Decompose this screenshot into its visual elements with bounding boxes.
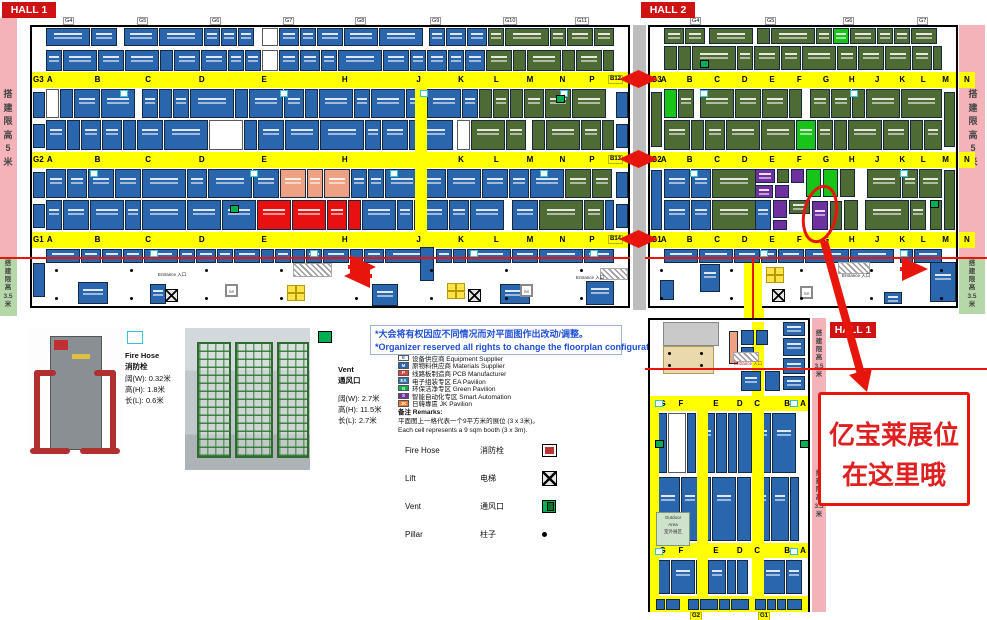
fire-hose-icon xyxy=(90,170,98,177)
booth xyxy=(924,120,942,150)
vent-icon xyxy=(542,500,556,513)
gate-label: G4 xyxy=(63,17,74,25)
aisle-letter: P xyxy=(589,156,594,164)
aisle-letter: C xyxy=(145,236,151,244)
booth xyxy=(867,169,901,198)
booth xyxy=(671,560,695,594)
organizer-notice: *大会将有权因应不同情况而对平面图作出改动/调整。 *Organizer res… xyxy=(370,325,622,355)
booth xyxy=(261,249,274,263)
aisle-letter: M xyxy=(942,156,949,164)
booth xyxy=(664,28,684,44)
booth xyxy=(712,169,756,198)
booth xyxy=(805,249,849,263)
booth xyxy=(465,50,485,71)
booth xyxy=(755,200,771,230)
pillar-icon xyxy=(940,297,943,300)
aisle-left-label: G1 xyxy=(651,236,662,244)
booth xyxy=(539,200,583,230)
booth xyxy=(789,89,802,118)
aisle-left-label: G2 xyxy=(33,156,44,164)
annotation-line1: 亿宝莱展位 xyxy=(821,415,967,455)
booth xyxy=(123,249,143,263)
booth xyxy=(448,50,464,71)
booth xyxy=(245,50,261,71)
gate-label: G5 xyxy=(765,17,776,25)
aisle xyxy=(650,72,956,88)
booth xyxy=(767,599,776,610)
booth xyxy=(383,50,409,71)
vent-icon xyxy=(318,331,332,343)
vent-icon xyxy=(556,95,565,103)
booth xyxy=(222,200,256,230)
aisle-right-letter: N xyxy=(964,76,970,84)
booth xyxy=(603,50,614,71)
pillar-icon xyxy=(870,297,873,300)
fire-hose-photo xyxy=(28,328,123,466)
pillar-icon xyxy=(940,269,943,272)
booth xyxy=(354,89,370,118)
booth xyxy=(833,28,849,44)
booth xyxy=(142,200,186,230)
booth xyxy=(700,264,720,292)
booth xyxy=(755,185,773,198)
aisle-letter: K xyxy=(899,76,905,84)
booth xyxy=(755,169,775,183)
legend-item-label: 日韓專區 JK Pavilion xyxy=(412,398,472,408)
aisle-letter: L xyxy=(494,76,499,84)
gate-label: G8 xyxy=(355,17,366,25)
booth xyxy=(584,200,604,230)
booth xyxy=(300,50,320,71)
booth xyxy=(350,249,363,263)
height-limit-text: 搭建限高 5 米 xyxy=(1,88,15,169)
legend-color-chip: M xyxy=(398,362,409,369)
booth xyxy=(651,92,662,147)
booth xyxy=(33,263,45,297)
aisle-letter: L xyxy=(921,76,926,84)
fire-hose-icon xyxy=(420,90,428,97)
vent-tower xyxy=(235,342,273,458)
symbol-legend-row: Lift电梯 xyxy=(405,464,557,492)
booth xyxy=(46,200,62,230)
service-tag xyxy=(447,291,456,299)
booth xyxy=(884,292,902,304)
booth xyxy=(46,50,62,71)
booth xyxy=(708,560,726,594)
booth xyxy=(572,89,606,118)
booth xyxy=(101,89,135,118)
aisle xyxy=(697,411,708,612)
booth xyxy=(142,169,186,198)
booth xyxy=(527,50,561,71)
gate-label: G5 xyxy=(137,17,148,25)
fire-hose-icon xyxy=(470,250,478,257)
booth xyxy=(605,200,614,230)
booth xyxy=(831,89,851,118)
booth xyxy=(562,50,575,71)
booth xyxy=(688,599,699,610)
aisle-letter: A xyxy=(800,547,806,555)
pillar-icon xyxy=(205,269,208,272)
booth xyxy=(482,169,508,198)
booth xyxy=(338,50,382,71)
booth xyxy=(911,28,937,44)
booth xyxy=(830,201,842,230)
booth xyxy=(201,50,227,71)
gate-number-tag: B14 xyxy=(608,235,623,244)
booth xyxy=(46,28,90,46)
pillar-icon xyxy=(660,297,663,300)
gate-label: G9 xyxy=(430,17,441,25)
booth xyxy=(436,249,452,263)
annotation-callout: 亿宝莱展位 在这里哦 xyxy=(818,392,970,506)
booth xyxy=(159,28,203,46)
frame-bar xyxy=(110,370,116,454)
booth xyxy=(305,89,318,118)
aisle-letter: M xyxy=(942,76,949,84)
booth xyxy=(791,169,804,183)
ramp-icon xyxy=(293,263,332,277)
booth xyxy=(691,120,704,150)
booth xyxy=(509,169,529,198)
booth xyxy=(866,89,900,118)
aisle-letter: H xyxy=(342,156,348,164)
booth xyxy=(46,89,59,118)
booth xyxy=(208,169,252,198)
aisle-letter: K xyxy=(458,156,464,164)
booth xyxy=(510,89,523,118)
booth xyxy=(173,89,189,118)
hall3-label: HALL 1 xyxy=(830,322,876,338)
booth xyxy=(616,204,628,228)
booth xyxy=(67,169,87,198)
aisle-letter: C xyxy=(145,76,151,84)
aisle xyxy=(650,152,956,168)
aisle-letter: E xyxy=(261,76,266,84)
booth xyxy=(699,249,733,263)
symbol-en-label: Fire Hose xyxy=(405,446,480,455)
booth xyxy=(91,28,117,46)
pillar-icon xyxy=(700,364,703,367)
service-tag xyxy=(287,285,296,293)
aisle-letter: A xyxy=(47,236,53,244)
booth xyxy=(790,477,799,541)
booth xyxy=(692,46,736,70)
legend-color-chip: EA xyxy=(398,377,409,384)
booth xyxy=(664,249,698,263)
booth xyxy=(734,249,760,263)
entrance-icon xyxy=(225,284,238,297)
aisle-letter: A xyxy=(47,156,53,164)
booth xyxy=(709,28,753,44)
booth xyxy=(285,120,319,150)
booth xyxy=(777,599,786,610)
booth xyxy=(123,120,136,150)
gate-label: G10 xyxy=(503,17,517,25)
aisle-letter: F xyxy=(797,76,802,84)
booth xyxy=(664,169,690,198)
fire-hose-icon xyxy=(150,250,158,257)
booth xyxy=(364,249,384,263)
booth xyxy=(258,120,284,150)
booth xyxy=(60,89,73,118)
booth xyxy=(712,477,736,541)
booth xyxy=(850,28,876,44)
booth xyxy=(761,560,785,594)
fire-hose-icon xyxy=(310,250,318,257)
fire-hose-icon xyxy=(590,250,598,257)
service-tag xyxy=(287,293,296,301)
pavilion-color-legend: E设备供应商 Equipment SupplierM原物料供应商 Materia… xyxy=(398,354,511,407)
booth xyxy=(584,249,614,263)
booth xyxy=(512,200,538,230)
booth xyxy=(321,50,337,71)
service-tag xyxy=(296,285,305,293)
service-tag xyxy=(766,275,775,283)
symbol-zh-label: 柱子 xyxy=(480,529,542,540)
booth xyxy=(125,50,159,71)
aisle-letter: H xyxy=(342,76,348,84)
gate-label: G7 xyxy=(917,17,928,25)
booth xyxy=(98,50,124,71)
booth xyxy=(796,120,816,150)
legend-color-chip: JK xyxy=(398,400,409,407)
pillar-icon xyxy=(355,269,358,272)
service-tag xyxy=(447,283,456,291)
booth xyxy=(324,169,350,198)
aisle-letter: P xyxy=(589,76,594,84)
booth xyxy=(840,169,855,197)
cabinet-label xyxy=(72,354,90,359)
outdoor-area-label: Outdoor xyxy=(657,515,689,522)
booth xyxy=(174,50,200,71)
booth xyxy=(488,28,504,46)
pillar-icon xyxy=(542,532,547,537)
aisle-letter: B xyxy=(687,76,693,84)
booth xyxy=(344,28,378,46)
booth xyxy=(160,50,173,71)
aisle-letter: K xyxy=(899,156,905,164)
frame-bar xyxy=(30,448,70,454)
booth xyxy=(512,249,538,263)
fire-hose-zh: 消防栓 xyxy=(125,361,171,372)
booth xyxy=(737,46,753,70)
booth xyxy=(453,249,466,263)
aisle-letter: A xyxy=(800,400,806,408)
booth xyxy=(885,46,911,70)
symbol-en-label: Lift xyxy=(405,474,480,483)
aisle-letter: H xyxy=(849,76,855,84)
booth xyxy=(546,120,580,150)
booth xyxy=(33,92,45,118)
booth xyxy=(727,560,736,594)
booth xyxy=(741,330,754,345)
booth xyxy=(894,28,910,44)
gate-number-tag: B13 xyxy=(608,155,623,164)
booth xyxy=(754,46,780,70)
frame-bar xyxy=(34,370,40,454)
booth xyxy=(716,413,727,473)
fire-hose-icon xyxy=(655,548,663,555)
aisle-letter: E xyxy=(713,400,718,408)
aisle-letter: L xyxy=(494,236,499,244)
booth xyxy=(228,50,244,71)
symbol-zh-label: 电梯 xyxy=(480,473,542,484)
fire-hose-en: Fire Hose xyxy=(125,350,171,361)
booth xyxy=(616,124,628,148)
booth xyxy=(616,92,628,118)
booth xyxy=(513,50,526,71)
outdoor-area-label: Area xyxy=(657,522,689,529)
booth xyxy=(726,120,760,150)
booth xyxy=(912,46,932,70)
aisle xyxy=(32,152,628,168)
aisle-letter: A xyxy=(47,76,53,84)
legend-color-chip: P xyxy=(398,370,409,377)
booth xyxy=(783,358,805,374)
aisle-left-label: G3 xyxy=(33,76,44,84)
gate-label: G7 xyxy=(283,17,294,25)
fire-hose-icon xyxy=(850,90,858,97)
outdoor-area-label: 室外展区 xyxy=(657,529,689,536)
aisle-letter: F xyxy=(797,156,802,164)
pillar-icon xyxy=(55,269,58,272)
aisle-letter: G xyxy=(823,156,829,164)
pillar-icon xyxy=(430,269,433,272)
pillar-icon xyxy=(55,297,58,300)
symbol-legend: Fire Hose消防栓Lift电梯Vent通风口Pillar柱子 xyxy=(405,436,557,548)
booth xyxy=(257,200,291,230)
aisle-letter: D xyxy=(199,76,205,84)
floorplan-canvas: HALL 1 HALL 2 HALL 1 *大会将有权因应不同情况而对平面图作出… xyxy=(0,0,987,620)
pillar-icon xyxy=(205,297,208,300)
booth xyxy=(664,46,677,70)
booth xyxy=(883,120,909,150)
booth xyxy=(348,200,361,230)
aisle-letter: C xyxy=(714,156,720,164)
booth xyxy=(382,120,408,150)
booth xyxy=(762,89,788,118)
booth xyxy=(756,330,768,345)
booth xyxy=(602,120,614,150)
service-tag xyxy=(456,283,465,291)
booth xyxy=(46,120,66,150)
hall1-label: HALL 1 xyxy=(2,2,56,18)
aisle-letter: E xyxy=(769,236,774,244)
aisle xyxy=(650,232,956,248)
fire-lane-line xyxy=(752,258,754,318)
booth xyxy=(823,169,838,197)
annotation-line2: 在这里哦 xyxy=(821,455,967,495)
fire-hose-icon xyxy=(790,400,798,407)
aisle-letter: B xyxy=(687,156,693,164)
booth xyxy=(755,599,766,610)
pillar-icon xyxy=(580,297,583,300)
entrance-label: Entrance 入口 xyxy=(842,273,870,279)
aisle-letter: D xyxy=(737,400,743,408)
booth xyxy=(33,172,45,198)
booth xyxy=(179,249,195,263)
booth xyxy=(616,172,628,198)
fire-hose-icon xyxy=(250,170,258,177)
aisle-letter: J xyxy=(416,236,420,244)
booth xyxy=(728,413,737,473)
booth xyxy=(150,284,166,304)
booth xyxy=(783,338,805,356)
fire-hose-icon xyxy=(700,90,708,97)
service-tag xyxy=(456,291,465,299)
aisle-letter: H xyxy=(342,236,348,244)
pillar-icon xyxy=(130,269,133,272)
height-limit-text: 搭建限高 3.5 米 xyxy=(813,330,825,379)
booth xyxy=(771,28,815,44)
booth xyxy=(63,50,97,71)
booth xyxy=(159,89,172,118)
fire-hose-icon xyxy=(390,170,398,177)
aisle xyxy=(744,308,764,318)
outdoor-area: OutdoorArea室外展区 xyxy=(656,512,690,546)
fire-lane-line xyxy=(645,257,987,259)
aisle-letter: M xyxy=(527,156,534,164)
booth xyxy=(125,200,141,230)
booth xyxy=(802,46,836,70)
booth xyxy=(775,185,789,198)
booth xyxy=(850,249,894,263)
legend-color-chip: E xyxy=(398,355,409,362)
frame-bar xyxy=(94,370,116,376)
booth xyxy=(420,247,434,281)
pillar-icon xyxy=(668,364,671,367)
booth xyxy=(307,169,323,198)
booth xyxy=(221,28,237,46)
aisle-letter: L xyxy=(494,156,499,164)
aisle-letter: F xyxy=(797,236,802,244)
booth xyxy=(664,200,690,230)
pillar-icon xyxy=(430,297,433,300)
booth xyxy=(735,89,761,118)
gate-number-tag: G1 xyxy=(758,612,770,620)
booth xyxy=(773,220,787,230)
booth xyxy=(592,169,612,198)
booth xyxy=(789,200,810,214)
booth xyxy=(848,120,882,150)
aisle-letter: N xyxy=(559,236,565,244)
aisle-letter: H xyxy=(849,156,855,164)
vent-icon xyxy=(700,60,709,68)
service-tag xyxy=(775,267,784,275)
booth xyxy=(235,89,248,118)
aisle-letter: D xyxy=(737,547,743,555)
symbol-legend-row: Fire Hose消防栓 xyxy=(405,436,557,464)
booth xyxy=(524,89,544,118)
remarks-title: 备注 Remarks: xyxy=(398,409,539,418)
service-block xyxy=(663,322,719,346)
pillar-icon xyxy=(505,297,508,300)
booth xyxy=(317,28,343,46)
booth xyxy=(249,89,283,118)
aisle-letter: J xyxy=(875,156,879,164)
fire-lane-line xyxy=(0,257,630,259)
pillar-icon xyxy=(800,297,803,300)
aisle-letter: F xyxy=(678,547,683,555)
booth xyxy=(320,120,364,150)
aisle-letter: C xyxy=(714,236,720,244)
pillar-icon xyxy=(355,297,358,300)
aisle-letter: K xyxy=(458,236,464,244)
aisle-letter: E xyxy=(261,156,266,164)
booth xyxy=(532,120,545,150)
booth xyxy=(685,28,705,44)
